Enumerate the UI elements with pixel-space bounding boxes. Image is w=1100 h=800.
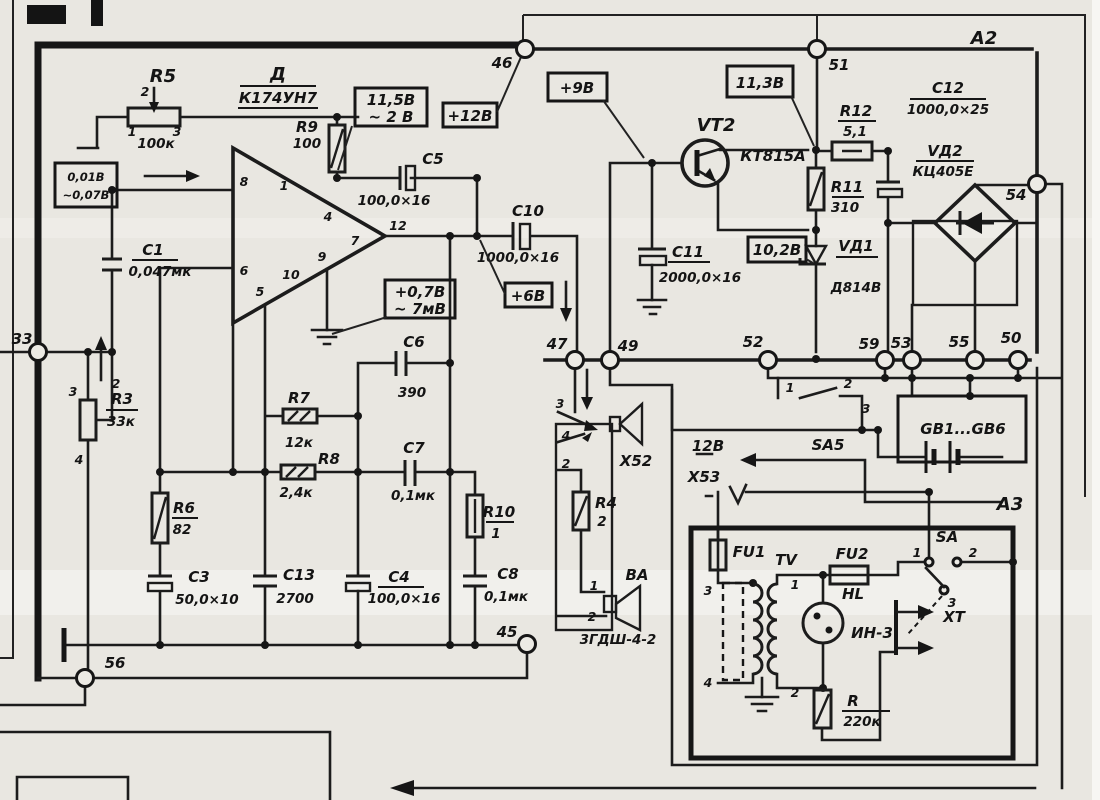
voltage-label: 11,5В <box>367 91 415 109</box>
headphone-icon <box>610 404 642 444</box>
vd2-designator: VД2 <box>927 142 962 160</box>
r7-designator: R7 <box>288 389 311 407</box>
c7-value: 0,1мк <box>391 488 436 504</box>
voltage-label: 0,01В <box>67 170 104 184</box>
r4-designator: R4 <box>595 494 617 512</box>
tv-pin: 1 <box>791 577 800 592</box>
r5-pin: 1 <box>128 124 137 139</box>
module-a3-label: А3 <box>995 494 1023 515</box>
measure-boxes: 0,01В ~0,07В 11,5В ~ 2 В +12В +9В +0,7В … <box>55 57 814 334</box>
battery-gb: GB1...GB6 <box>898 396 1026 473</box>
c11-designator: С11 <box>672 243 704 261</box>
node-label: 56 <box>105 654 126 672</box>
capacitor-c6: С6 390 <box>396 333 426 401</box>
ic-pin: 4 <box>323 209 333 224</box>
c13-value: 2700 <box>276 591 314 607</box>
resistor-r6: R6 82 <box>152 493 198 543</box>
board-borders <box>0 0 1085 800</box>
tv-pin: 2 <box>791 685 800 700</box>
node-50 <box>1010 352 1027 369</box>
print-mark <box>91 0 103 26</box>
resistor-r12: R12 5,1 <box>832 102 876 160</box>
c13-designator: С13 <box>283 566 315 584</box>
r5-designator: R5 <box>150 66 176 87</box>
r11-designator: R11 <box>831 178 863 196</box>
r7-value: 12к <box>285 435 314 451</box>
voltage-label: 11,3В <box>736 74 784 92</box>
ic-part: К174УН7 <box>239 89 318 107</box>
node-55 <box>967 352 984 369</box>
frame-line <box>0 0 13 658</box>
node-label: 54 <box>1006 186 1027 204</box>
node-53 <box>904 352 921 369</box>
node-label: 46 <box>491 54 513 72</box>
node-45 <box>519 636 536 653</box>
c8-designator: С8 <box>497 565 518 583</box>
r9-value: 100 <box>293 136 321 152</box>
scan-edge <box>1092 0 1100 800</box>
resistor-r5: R5 2 1 3 100к <box>128 66 182 152</box>
r12-value: 5,1 <box>843 124 867 140</box>
c3-designator: С3 <box>188 568 209 586</box>
tv-designator: TV <box>775 551 798 569</box>
r3-pin: 2 <box>112 376 121 391</box>
r6-designator: R6 <box>173 499 195 517</box>
x53-voltage: 12В <box>692 437 724 455</box>
paper-artifacts <box>0 0 1100 800</box>
resistor-r10: R10 1 <box>467 495 515 542</box>
sa-designator: SA <box>936 528 958 546</box>
r10-designator: R10 <box>483 503 515 521</box>
node-56 <box>77 670 94 687</box>
c7-designator: С7 <box>403 439 425 457</box>
node-label: 47 <box>546 335 568 353</box>
ba-part: 3ГДШ-4-2 <box>580 632 657 648</box>
node-47 <box>567 352 584 369</box>
tv-pin: 3 <box>704 583 713 598</box>
potentiometer-icon <box>80 400 96 440</box>
plug-pin-icon <box>730 485 746 503</box>
r9-designator: R9 <box>296 118 318 136</box>
c10-designator: С10 <box>512 202 544 220</box>
diode-vd1: VД1 Д814В <box>800 237 881 296</box>
schematic-page: Д К174УН7 8 1 4 7 12 6 5 10 9 R5 2 1 3 1… <box>0 0 1100 800</box>
r12-designator: R12 <box>840 102 872 120</box>
ic-pin: 10 <box>282 267 300 282</box>
c12-value: 1000,0×25 <box>907 102 989 118</box>
node-label: 45 <box>496 623 518 641</box>
ic-pin: 7 <box>351 233 360 248</box>
c3-value: 50,0×10 <box>175 592 238 608</box>
fu2-designator: FU2 <box>836 545 869 563</box>
r3-value: 33к <box>107 414 136 430</box>
r8-value: 2,4к <box>279 485 313 501</box>
resistor-r3: R3 33к 3 2 4 <box>69 336 138 467</box>
capacitor-c1: С1 0,047мк <box>102 241 192 280</box>
voltage-label: +0,7В <box>395 283 446 301</box>
node-51 <box>809 41 826 58</box>
node-54 <box>1029 176 1046 193</box>
sa5-pin: 3 <box>862 401 871 416</box>
battery-icon <box>926 441 950 473</box>
c6-value: 390 <box>398 385 426 401</box>
rpsu-value: 220к <box>843 714 881 730</box>
schematic-drawing: Д К174УН7 8 1 4 7 12 6 5 10 9 R5 2 1 3 1… <box>0 0 1100 800</box>
r8-designator: R8 <box>318 450 340 468</box>
voltage-label: ~0,07В <box>63 188 110 202</box>
rpsu-designator: R <box>847 692 859 710</box>
r4-value: 2 <box>597 514 606 530</box>
capacitor-c5: С5 100,0×16 <box>358 150 444 209</box>
voltage-label: 10,2В <box>753 241 801 259</box>
vt2-designator: VT2 <box>697 115 736 136</box>
annotation-arrows <box>145 170 1035 796</box>
sa-pin: 2 <box>969 545 978 560</box>
hl-designator: HL <box>842 585 864 603</box>
voltage-label: +12В <box>448 107 493 125</box>
node-46 <box>517 41 534 58</box>
ground-icon <box>638 300 666 314</box>
node-label: 59 <box>859 335 880 353</box>
resistor-r8: R8 2,4к <box>279 450 340 501</box>
r10-value: 1 <box>491 526 500 542</box>
voltage-label: +6В <box>511 287 545 305</box>
node-label: 51 <box>829 56 850 74</box>
print-mark <box>27 5 66 24</box>
node-59 <box>877 352 894 369</box>
c11-value: 2000,0×16 <box>659 270 741 286</box>
ic-pin: 9 <box>318 249 327 264</box>
resistor-r11: R11 310 <box>808 168 864 216</box>
ba-pin: 2 <box>588 609 597 624</box>
transistor-vt2: VT2 КТ815А <box>682 115 806 186</box>
transistor-icon <box>682 140 728 186</box>
sa5-designator: SA5 <box>812 436 845 454</box>
r11-value: 310 <box>831 200 859 216</box>
r3-pin: 3 <box>69 384 78 399</box>
ic-pin: 12 <box>389 218 406 233</box>
c4-designator: С4 <box>388 568 409 586</box>
switch-sa5: 1 2 3 SA5 <box>786 376 871 454</box>
node-label: 33 <box>12 330 33 348</box>
ic-pin: 6 <box>240 263 249 278</box>
ic-pin: 8 <box>240 174 249 189</box>
ic-designator: Д <box>269 64 286 85</box>
x52-pin: 4 <box>561 428 571 443</box>
r6-value: 82 <box>173 522 192 538</box>
voltage-label: +9В <box>560 79 594 97</box>
node-label: 52 <box>743 333 764 351</box>
voltage-label: ~ 2 В <box>369 108 414 126</box>
x53-designator: Х53 <box>687 468 720 486</box>
node-label: 53 <box>891 334 912 352</box>
wires <box>0 54 1062 788</box>
bottom-left-wires <box>0 687 330 800</box>
c4-value: 100,0×16 <box>368 591 441 607</box>
x52-designator: Х52 <box>619 452 652 470</box>
node-49 <box>602 352 619 369</box>
ground-icon <box>746 697 778 711</box>
node-label: 49 <box>617 337 639 355</box>
capacitor-c11: С11 2000,0×16 <box>638 243 741 314</box>
c1-designator: С1 <box>142 241 163 259</box>
r5-value: 100к <box>137 136 175 152</box>
tv-pin: 4 <box>703 675 713 690</box>
ba-designator: ВА <box>625 566 648 584</box>
sa-pin: 1 <box>913 545 922 560</box>
x52-pin: 2 <box>562 456 571 471</box>
fu1-designator: FU1 <box>733 543 766 561</box>
sa5-pin: 1 <box>786 380 795 395</box>
vd1-designator: VД1 <box>838 237 873 255</box>
vd2-part: КЦ405Е <box>913 164 975 180</box>
sa5-pin: 2 <box>844 376 853 391</box>
ic-pin: 5 <box>256 284 265 299</box>
ba-pin: 1 <box>590 578 599 593</box>
ic-pin: 1 <box>280 178 289 193</box>
r5-pin: 2 <box>141 84 150 99</box>
node-52 <box>760 352 777 369</box>
c1-value: 0,047мк <box>129 264 193 280</box>
resistor-r7: R7 12к <box>283 389 317 451</box>
hl-part: ИН-3 <box>851 624 893 642</box>
node-label: 50 <box>1001 329 1022 347</box>
xt-designator: ХТ <box>942 608 967 626</box>
vt2-part: КТ815А <box>740 147 805 165</box>
resistor-r9: R9 100 <box>293 118 345 172</box>
c8-value: 0,1мк <box>484 589 529 605</box>
c12-designator: С12 <box>932 79 964 97</box>
r3-designator: R3 <box>111 390 133 408</box>
node-label: 55 <box>949 333 970 351</box>
c5-designator: С5 <box>422 150 443 168</box>
x52-pin: 3 <box>556 396 565 411</box>
r3-pin: 4 <box>74 452 84 467</box>
c6-designator: С6 <box>403 333 424 351</box>
module-a2-label: А2 <box>969 28 997 49</box>
voltage-label: ~ 7мВ <box>394 300 446 318</box>
c5-value: 100,0×16 <box>358 193 431 209</box>
vd1-part: Д814В <box>830 280 882 296</box>
gb-designator: GB1...GB6 <box>920 420 1005 438</box>
